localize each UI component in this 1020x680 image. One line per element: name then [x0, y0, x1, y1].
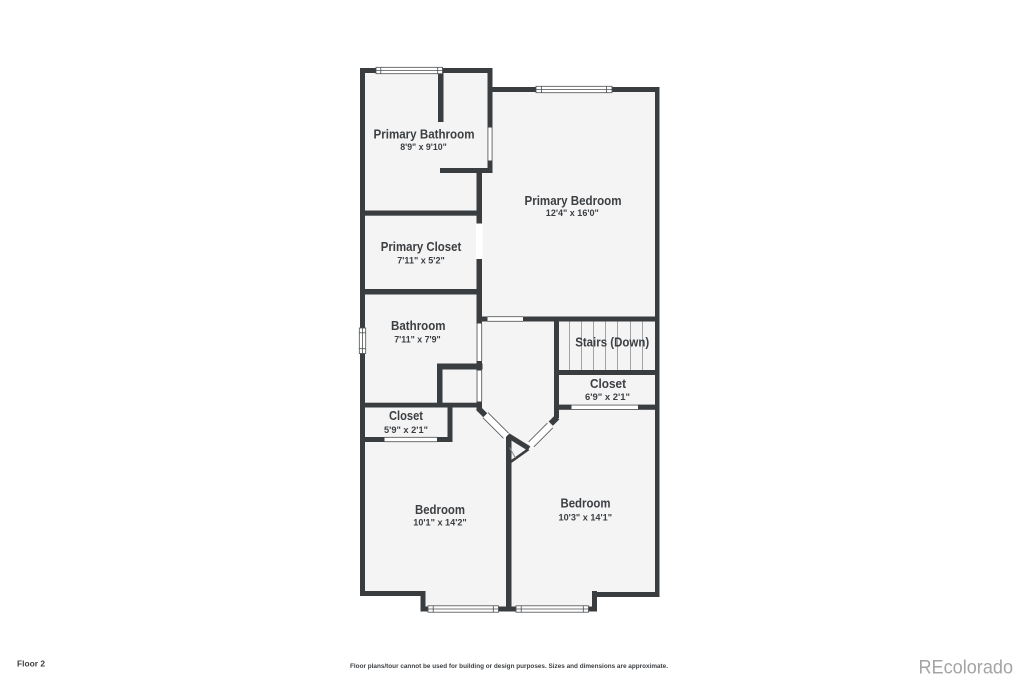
svg-text:Bedroom: Bedroom	[561, 495, 611, 510]
svg-text:Stairs (Down): Stairs (Down)	[575, 334, 649, 349]
svg-text:12'4" x 16'0": 12'4" x 16'0"	[546, 208, 599, 218]
svg-text:7'11" x 7'9": 7'11" x 7'9"	[394, 335, 441, 345]
svg-text:5'9" x 2'1": 5'9" x 2'1"	[384, 425, 428, 435]
svg-text:REcolorado: REcolorado	[919, 657, 1014, 679]
svg-text:Floor plans/tour cannot be use: Floor plans/tour cannot be used for buil…	[350, 663, 668, 670]
svg-text:Closet: Closet	[389, 408, 424, 423]
svg-text:Primary Bedroom: Primary Bedroom	[525, 193, 622, 208]
svg-text:Bedroom: Bedroom	[415, 502, 465, 517]
svg-text:10'1" x 14'2": 10'1" x 14'2"	[413, 518, 467, 528]
svg-text:Primary Closet: Primary Closet	[381, 239, 462, 254]
svg-text:6'9" x 2'1": 6'9" x 2'1"	[585, 392, 630, 402]
svg-text:Floor 2: Floor 2	[17, 660, 45, 669]
svg-text:Primary Bathroom: Primary Bathroom	[374, 126, 475, 141]
svg-text:8'9" x 9'10": 8'9" x 9'10"	[400, 142, 447, 152]
svg-text:7'11" x 5'2": 7'11" x 5'2"	[397, 256, 445, 266]
svg-text:Closet: Closet	[590, 376, 627, 391]
svg-text:Bathroom: Bathroom	[391, 318, 446, 333]
svg-text:10'3" x 14'1": 10'3" x 14'1"	[559, 513, 613, 523]
